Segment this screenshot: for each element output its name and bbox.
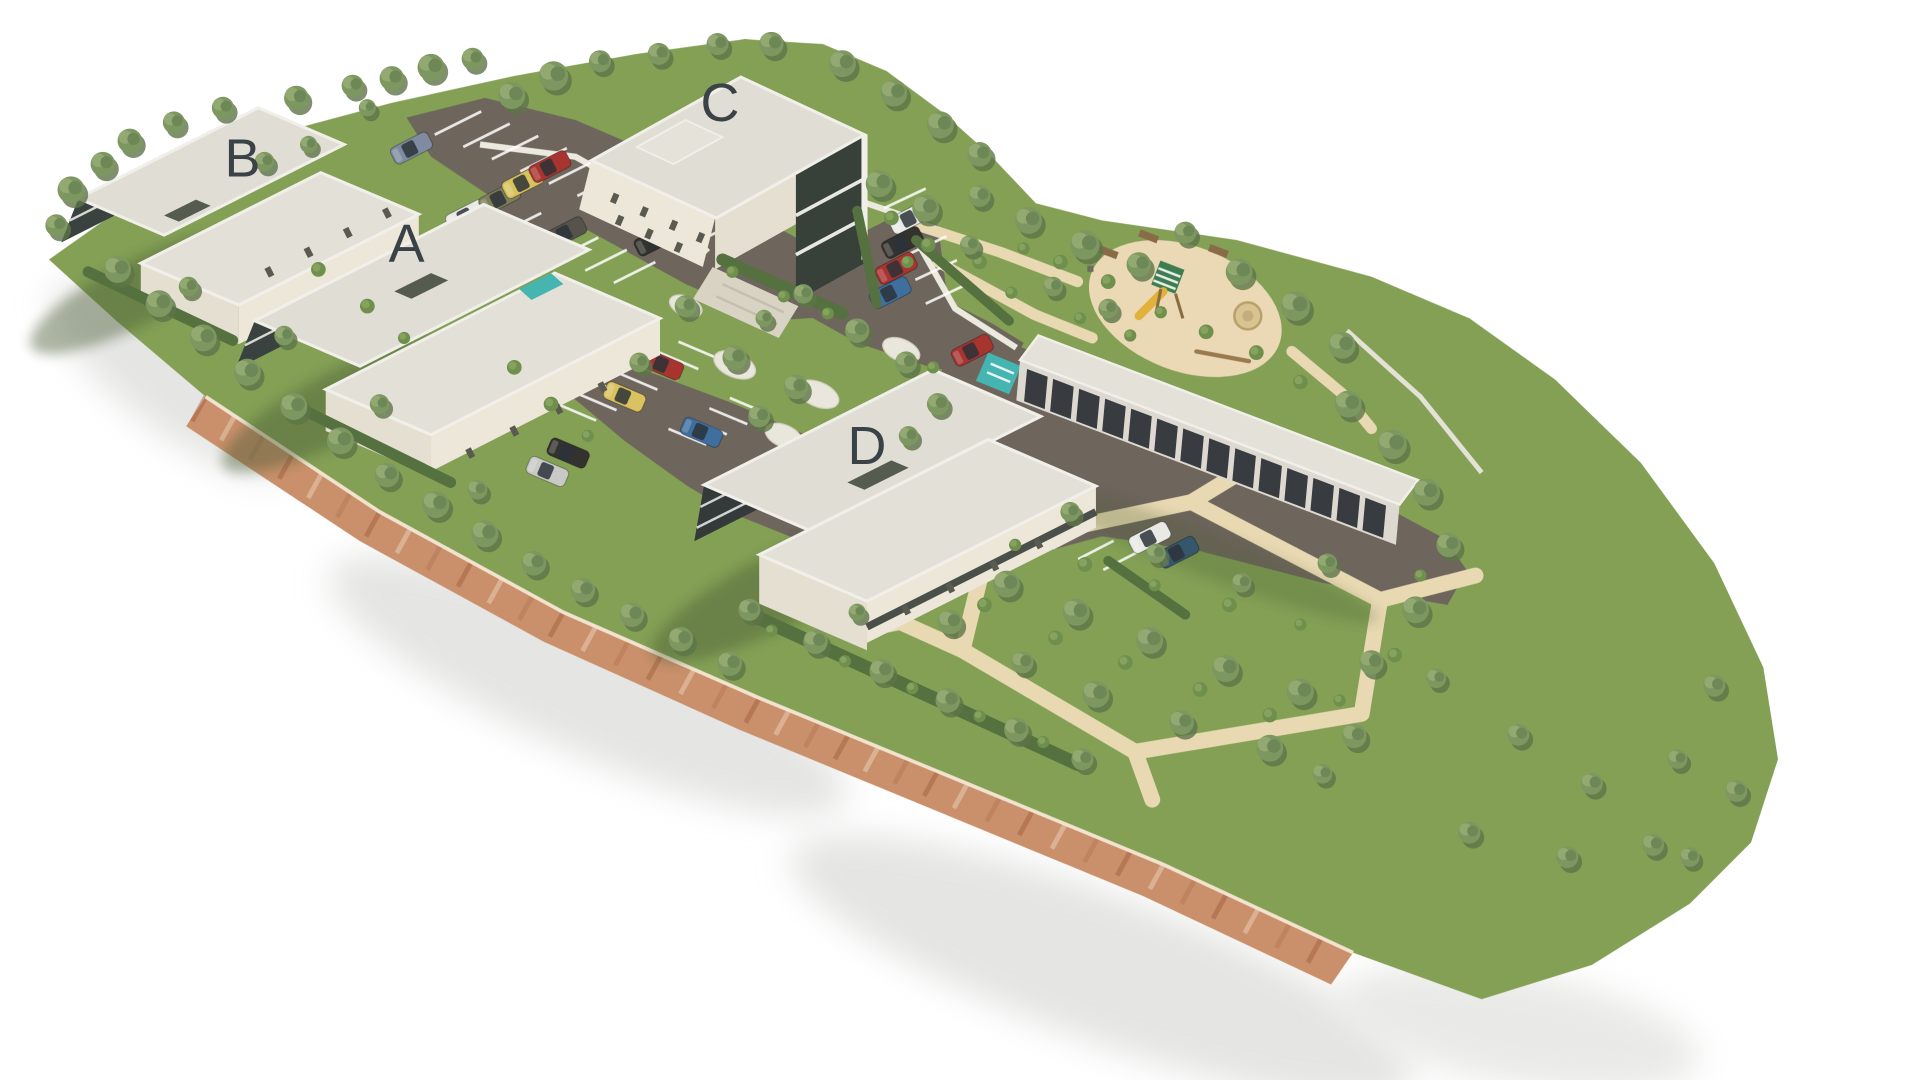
tree (462, 48, 488, 75)
site-plan-svg: B A C D (0, 0, 1920, 1080)
bush (1037, 736, 1049, 748)
bush (765, 624, 777, 636)
building-c-label: C (701, 73, 740, 133)
bush (1294, 618, 1306, 630)
bush (1124, 329, 1136, 341)
bush (778, 290, 790, 302)
bush (1048, 631, 1063, 646)
bush (507, 360, 522, 375)
bush (1118, 655, 1133, 670)
bush (1053, 255, 1068, 270)
bush (1193, 682, 1208, 697)
bush (1101, 274, 1116, 289)
sandbox-center (1242, 310, 1253, 321)
bush (1414, 569, 1426, 581)
bush (1293, 375, 1308, 390)
tree (284, 86, 312, 115)
tree (380, 66, 408, 95)
bush (726, 266, 738, 278)
bush (977, 598, 992, 613)
building-a-label: A (389, 214, 425, 274)
bush (311, 262, 326, 277)
site-plan-render: B A C D (0, 0, 1920, 1080)
building-d-label: D (847, 416, 886, 476)
bush (360, 299, 375, 314)
bush (1249, 345, 1264, 360)
bush (901, 256, 913, 268)
bush (973, 710, 985, 722)
bush (398, 332, 410, 344)
bush (1222, 598, 1237, 613)
bush (921, 238, 936, 253)
bush (1155, 306, 1167, 318)
tree (118, 129, 146, 158)
tree (342, 75, 368, 102)
bush (1074, 312, 1086, 324)
bush (927, 361, 939, 373)
tree (163, 111, 189, 138)
bush (1262, 708, 1277, 723)
building-b-label: B (224, 128, 260, 188)
bush (582, 430, 594, 442)
bush (1333, 694, 1345, 706)
bush (544, 397, 559, 412)
bush (1005, 287, 1017, 299)
tree (212, 97, 238, 124)
tree (91, 152, 119, 181)
tree (418, 54, 449, 86)
bush (1387, 648, 1402, 663)
bush (1078, 557, 1093, 572)
tree (58, 176, 89, 208)
bush (1199, 324, 1214, 339)
bush (822, 307, 834, 319)
bush (1018, 242, 1030, 254)
bush (884, 211, 899, 226)
bush (1149, 579, 1161, 591)
tree (45, 214, 71, 241)
bush (1009, 539, 1021, 551)
bush (906, 682, 918, 694)
bush (839, 655, 851, 667)
